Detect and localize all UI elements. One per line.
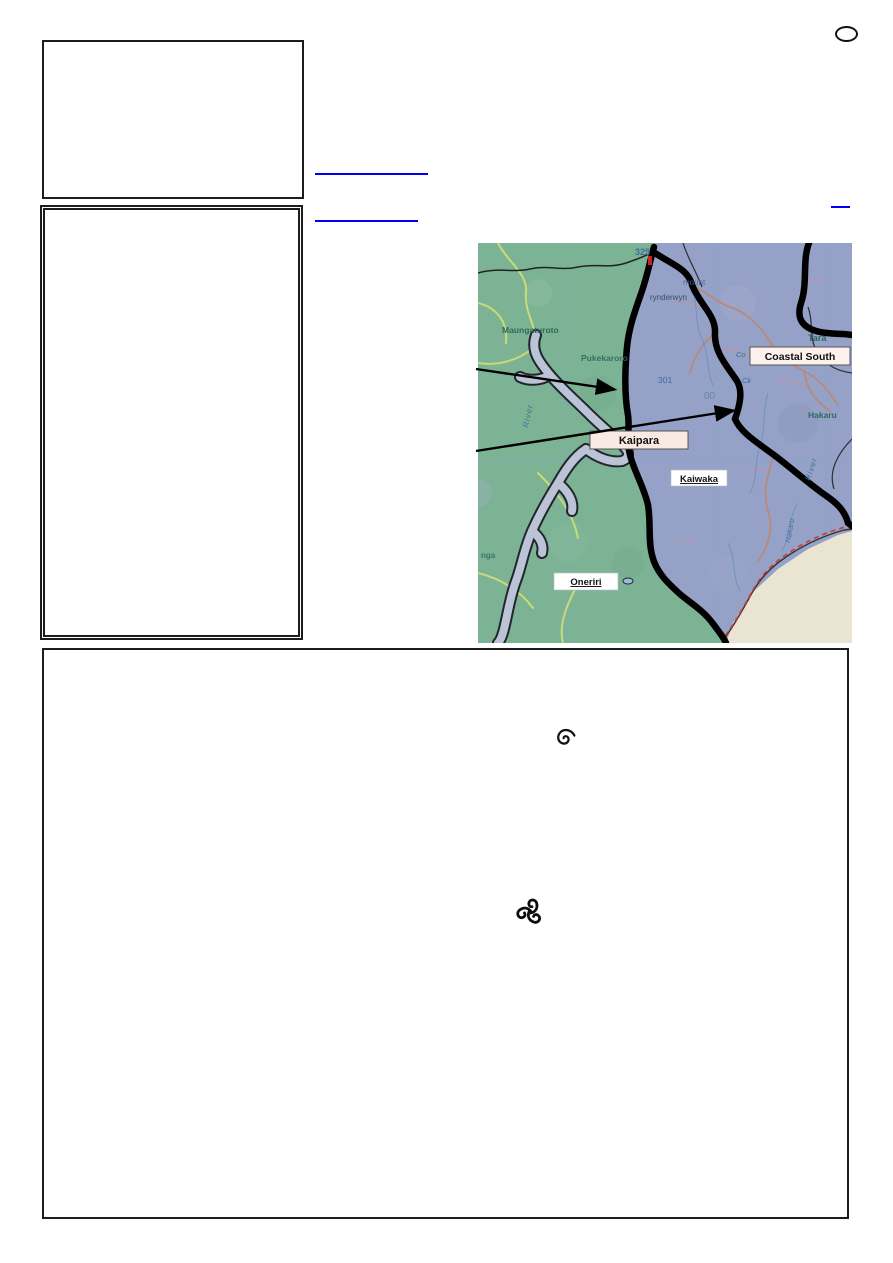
hyperlink-underline-2[interactable] xyxy=(315,220,418,222)
ellipse-annotation xyxy=(835,26,858,42)
svg-text:Oneriri: Oneriri xyxy=(570,577,601,588)
svg-text:Kaiwaka: Kaiwaka xyxy=(680,474,719,485)
label-grid-00: 00 xyxy=(704,391,716,402)
label-co: Co xyxy=(736,350,746,359)
label-maungaturoto: Maungaturoto xyxy=(502,325,559,335)
middle-left-text-box xyxy=(40,205,303,640)
bottom-text-box xyxy=(42,648,849,1219)
document-page: { "document": { "background": "#ffffff",… xyxy=(0,0,893,1263)
oneriri-label: Oneriri xyxy=(554,573,618,590)
label-301: 301 xyxy=(658,375,672,385)
label-tara: Tara xyxy=(808,333,827,343)
kaipara-district-map: 325 mount rynderwyn Maungaturoto Pukekar… xyxy=(478,243,852,643)
svg-text:Kaipara: Kaipara xyxy=(619,435,660,447)
svg-text:Coastal South: Coastal South xyxy=(765,351,836,363)
label-pukekaroro: Pukekaroro xyxy=(581,353,628,363)
label-325: 325 xyxy=(635,247,650,257)
coastal-south-label: Coastal South xyxy=(750,347,850,365)
label-hakaru: Hakaru xyxy=(808,410,837,420)
kaipara-label: Kaipara xyxy=(590,431,688,449)
map-red-tick xyxy=(648,256,652,265)
map-image: 325 mount rynderwyn Maungaturoto Pukekar… xyxy=(478,243,852,643)
label-brynderwyn: rynderwyn xyxy=(650,293,687,302)
label-ck: Ck xyxy=(742,376,752,385)
hyperlink-underline-1[interactable] xyxy=(315,173,428,175)
label-nga: nga xyxy=(481,551,496,560)
label-mount: mount xyxy=(683,278,706,287)
top-left-text-box xyxy=(42,40,304,199)
hyperlink-underline-3[interactable] xyxy=(831,206,850,208)
kaiwaka-label: Kaiwaka xyxy=(671,470,727,486)
